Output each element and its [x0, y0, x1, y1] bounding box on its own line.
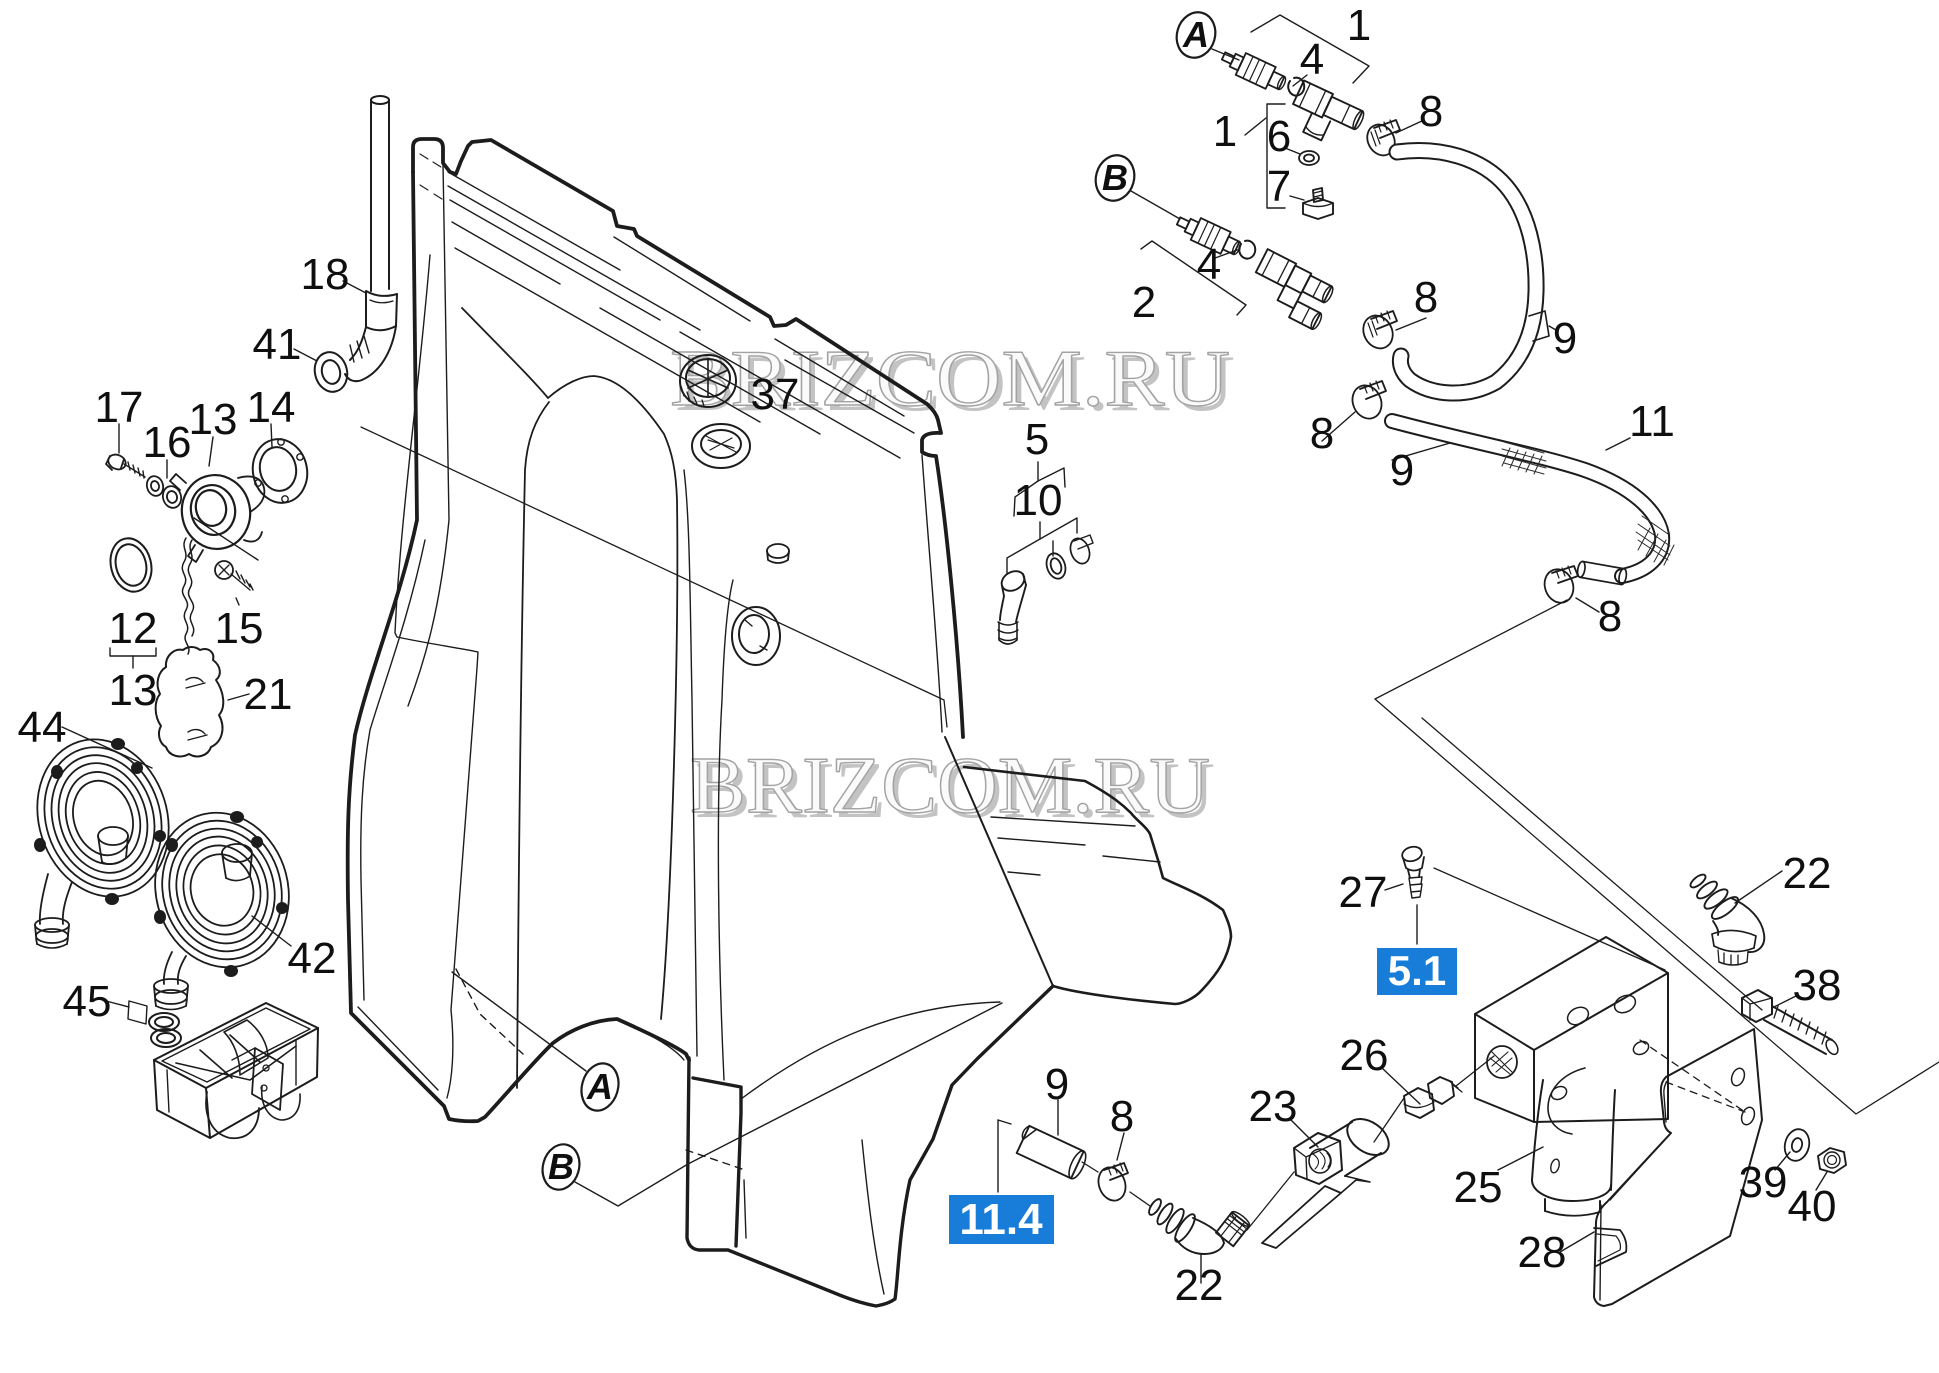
- svg-text:5.1: 5.1: [1388, 947, 1446, 994]
- svg-text:44: 44: [18, 703, 67, 752]
- svg-text:13: 13: [109, 666, 158, 715]
- svg-text:22: 22: [1783, 849, 1832, 898]
- svg-text:1: 1: [1213, 107, 1237, 156]
- svg-text:7: 7: [1267, 162, 1291, 211]
- svg-text:40: 40: [1788, 1182, 1837, 1231]
- svg-text:23: 23: [1249, 1082, 1298, 1131]
- svg-text:8: 8: [1110, 1092, 1134, 1141]
- svg-text:28: 28: [1518, 1228, 1567, 1277]
- svg-text:14: 14: [247, 383, 296, 432]
- svg-text:39: 39: [1739, 1158, 1788, 1207]
- svg-text:17: 17: [95, 383, 144, 432]
- svg-text:41: 41: [253, 320, 302, 369]
- svg-text:4: 4: [1300, 35, 1324, 84]
- svg-text:8: 8: [1598, 592, 1622, 641]
- svg-text:11.4: 11.4: [959, 1195, 1043, 1244]
- svg-text:9: 9: [1553, 314, 1577, 363]
- svg-text:2: 2: [1132, 278, 1156, 327]
- svg-text:26: 26: [1340, 1031, 1389, 1080]
- svg-text:9: 9: [1390, 446, 1414, 495]
- svg-text:A: A: [1182, 14, 1209, 55]
- svg-text:12: 12: [109, 604, 158, 653]
- svg-text:1: 1: [1347, 1, 1371, 50]
- svg-text:25: 25: [1454, 1163, 1503, 1212]
- svg-text:27: 27: [1339, 868, 1388, 917]
- svg-text:B: B: [548, 1146, 574, 1187]
- svg-text:B: B: [1102, 157, 1128, 198]
- svg-text:42: 42: [288, 934, 337, 983]
- svg-text:8: 8: [1414, 273, 1438, 322]
- svg-text:9: 9: [1045, 1060, 1069, 1109]
- svg-text:4: 4: [1197, 240, 1221, 289]
- svg-text:5: 5: [1025, 415, 1049, 464]
- svg-text:BRIZCOM.RU: BRIZCOM.RU: [690, 742, 1210, 830]
- svg-text:22: 22: [1175, 1261, 1224, 1310]
- svg-text:15: 15: [215, 604, 264, 653]
- svg-text:16: 16: [143, 418, 192, 467]
- svg-text:13: 13: [189, 395, 238, 444]
- svg-text:8: 8: [1419, 87, 1443, 136]
- svg-text:45: 45: [63, 977, 112, 1026]
- svg-text:10: 10: [1014, 476, 1063, 525]
- svg-text:38: 38: [1793, 961, 1842, 1010]
- svg-text:11: 11: [1629, 397, 1675, 446]
- svg-text:18: 18: [301, 250, 350, 299]
- svg-text:6: 6: [1267, 112, 1291, 161]
- svg-text:A: A: [586, 1066, 613, 1107]
- svg-text:8: 8: [1310, 409, 1334, 458]
- svg-text:21: 21: [244, 670, 293, 719]
- svg-text:37: 37: [751, 370, 800, 419]
